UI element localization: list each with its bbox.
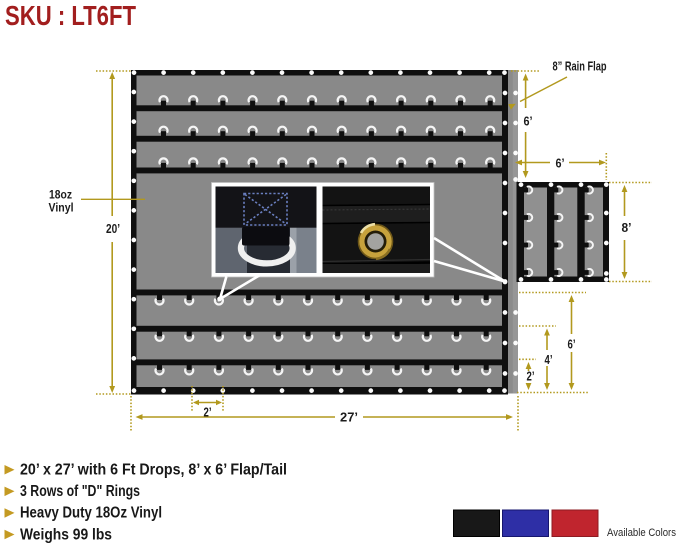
svg-text:6’: 6’ bbox=[524, 115, 533, 129]
svg-text:Heavy Duty 18Oz Vinyl: Heavy Duty 18Oz Vinyl bbox=[20, 505, 162, 522]
svg-text:Available Colors: Available Colors bbox=[607, 527, 676, 539]
svg-text:Weighs 99 lbs: Weighs 99 lbs bbox=[20, 526, 112, 543]
svg-text:8’: 8’ bbox=[622, 221, 632, 235]
svg-text:2’: 2’ bbox=[527, 370, 535, 384]
svg-text:20’: 20’ bbox=[106, 222, 120, 236]
svg-text:3 Rows of "D" Rings: 3 Rows of "D" Rings bbox=[20, 483, 140, 500]
svg-text:6’: 6’ bbox=[568, 338, 576, 352]
svg-text:SKU : LT6FT: SKU : LT6FT bbox=[5, 0, 136, 31]
svg-text:27’: 27’ bbox=[340, 411, 358, 425]
svg-text:Vinyl: Vinyl bbox=[49, 201, 74, 215]
svg-text:6’: 6’ bbox=[556, 157, 565, 171]
svg-text:2’: 2’ bbox=[204, 406, 212, 420]
svg-text:18oz: 18oz bbox=[49, 188, 72, 202]
svg-text:4’: 4’ bbox=[545, 353, 553, 367]
svg-text:8” Rain Flap: 8” Rain Flap bbox=[553, 59, 607, 74]
svg-text:20’ x 27’ with 6 Ft Drops, 8’: 20’ x 27’ with 6 Ft Drops, 8’ x 6’ Flap/… bbox=[20, 462, 287, 479]
